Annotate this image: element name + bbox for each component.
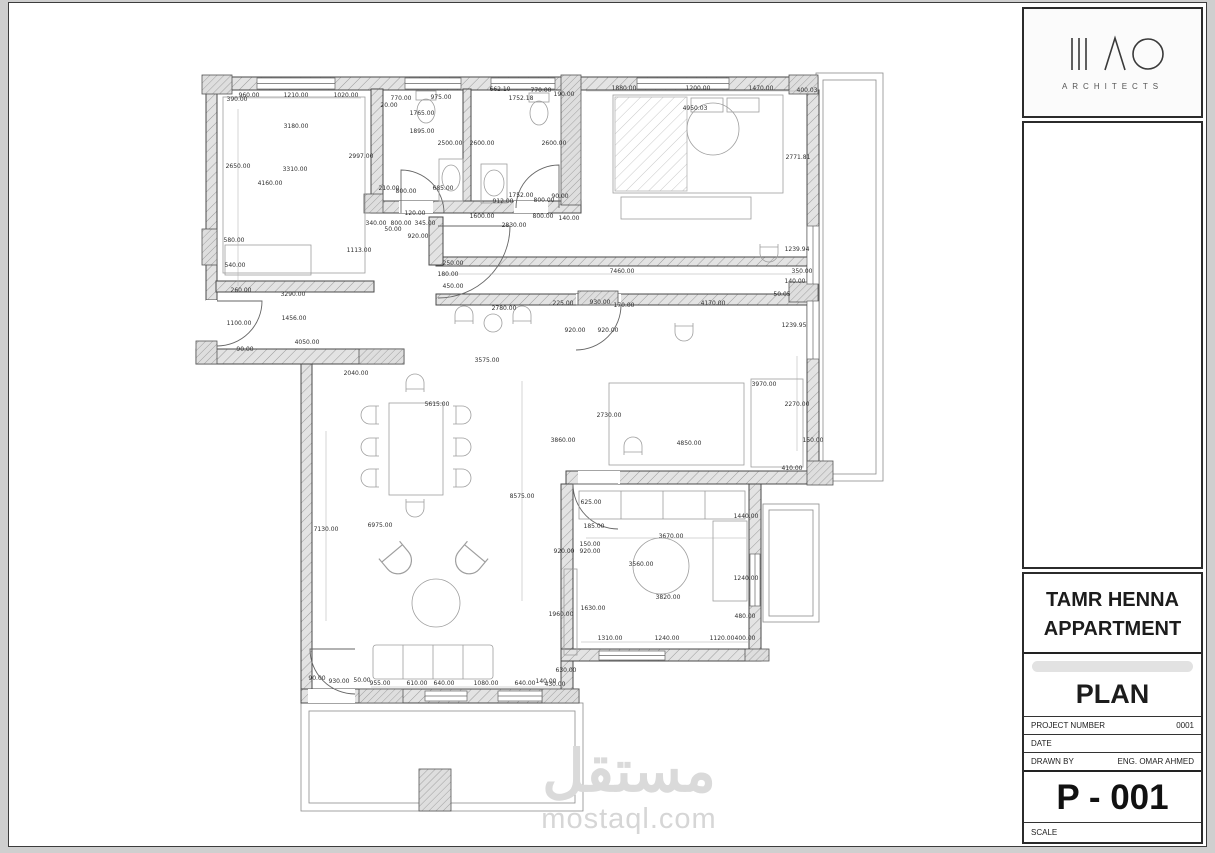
- dimension-label: 20.00: [380, 102, 397, 109]
- dimension-label: 975.00: [431, 94, 452, 101]
- dimension-label: 3670.00: [659, 533, 684, 540]
- dimension-label: 610.00: [407, 680, 428, 687]
- dimension-label: 770.00: [531, 87, 552, 94]
- dimension-label: 7130.00: [314, 526, 339, 533]
- dimension-label: 50.00: [353, 677, 370, 684]
- dimension-label: 1960.00: [549, 611, 574, 618]
- dimension-label: 1240.00: [655, 635, 680, 642]
- logo-subtitle: ARCHITECTS: [1062, 82, 1163, 91]
- dimension-label: 2600.00: [542, 140, 567, 147]
- dimension-label: 410.00: [782, 465, 803, 472]
- dimension-label: 140.00: [559, 215, 580, 222]
- dimension-label: 955.00: [370, 680, 391, 687]
- dimension-label: 2771.81: [786, 154, 811, 161]
- dimension-label: 180.00: [438, 271, 459, 278]
- dimension-label: 345.00: [415, 220, 436, 227]
- title-box: TAMR HENNA APPARTMENT PLAN PROJECT NUMBE…: [1022, 572, 1203, 844]
- dimension-label: 1020.00: [334, 92, 359, 99]
- dimension-label: 2500.00: [438, 140, 463, 147]
- dimension-label: 150.00: [580, 541, 601, 548]
- dimension-label: 920.00: [408, 233, 429, 240]
- dimension-label: 912.00: [493, 198, 514, 205]
- dimension-label: 930.00: [329, 678, 350, 685]
- dimension-label: 920.00: [554, 548, 575, 555]
- dimension-label: 640.00: [434, 680, 455, 687]
- dimension-label: 1456.00: [282, 315, 307, 322]
- dimension-label: 2270.00: [785, 401, 810, 408]
- dimension-label: 1470.00: [749, 85, 774, 92]
- dimension-label: 920.00: [580, 548, 601, 555]
- project-title-line1: TAMR HENNA: [1030, 586, 1195, 615]
- redacted-text-bar: [1032, 661, 1193, 672]
- dimension-label: 2830.00: [502, 222, 527, 229]
- dimension-label: 1239.95: [782, 322, 807, 329]
- dimension-label: 920.00: [565, 327, 586, 334]
- logo-box: ARCHITECTS: [1022, 7, 1203, 118]
- project-title-line2: APPARTMENT: [1030, 615, 1195, 644]
- dimension-label: 350.00: [792, 268, 813, 275]
- project-title: TAMR HENNA APPARTMENT: [1024, 574, 1201, 654]
- project-number-value: 0001: [1176, 721, 1194, 730]
- dimension-label: 1630.00: [581, 605, 606, 612]
- revision-box: [1022, 121, 1203, 569]
- dimension-label: 800.00: [396, 188, 417, 195]
- dimension-label: 140.00: [785, 278, 806, 285]
- dimension-label: 4170.00: [701, 300, 726, 307]
- dimension-label: 250.00: [443, 260, 464, 267]
- dimension-label: 930.00: [590, 299, 611, 306]
- windows-group: [257, 78, 819, 701]
- dimension-label: 800.00: [533, 213, 554, 220]
- dimension-label: 480.00: [735, 613, 756, 620]
- dimension-label: 3575.00: [475, 357, 500, 364]
- dimension-label: 2650.00: [226, 163, 251, 170]
- dimension-labels-group: 960.001210.001020.00390.00770.0020.00975…: [224, 85, 824, 688]
- dimension-label: 3290.00: [281, 291, 306, 298]
- dimension-lines-group: [233, 91, 806, 687]
- dimension-label: 2600.00: [470, 140, 495, 147]
- dimension-label: 5615.00: [425, 401, 450, 408]
- title-block-panel: ARCHITECTS TAMR HENNA APPARTMENT PLAN PR…: [1022, 7, 1203, 844]
- drawn-by-label: DRAWN BY: [1031, 757, 1074, 766]
- dimension-label: 90.00: [308, 675, 325, 682]
- dimension-label: 7460.00: [610, 268, 635, 275]
- dimension-label: 190.00: [554, 91, 575, 98]
- drawn-by-row: DRAWN BY ENG. OMAR AHMED: [1024, 753, 1201, 772]
- dimension-label: 3860.00: [551, 437, 576, 444]
- dimension-label: 2730.00: [597, 412, 622, 419]
- sheet-number: P - 001: [1024, 772, 1201, 823]
- dimension-label: 1895.00: [410, 128, 435, 135]
- dimension-label: 4950.03: [683, 105, 708, 112]
- project-number-row: PROJECT NUMBER 0001: [1024, 717, 1201, 735]
- dimension-label: 4160.00: [258, 180, 283, 187]
- dimension-label: 630.00: [556, 667, 577, 674]
- dimension-label: 225.00: [553, 300, 574, 307]
- drawn-by-value: ENG. OMAR AHMED: [1118, 757, 1194, 766]
- dimension-label: 1120.00: [710, 635, 735, 642]
- dimension-label: 1200.00: [686, 85, 711, 92]
- dimension-label: 625.00: [581, 499, 602, 506]
- dimension-label: 2780.00: [492, 305, 517, 312]
- dimension-label: 400.00: [735, 635, 756, 642]
- dimension-label: 1440.00: [734, 513, 759, 520]
- mao-architects-logo-icon: [1058, 34, 1168, 76]
- dimension-label: 640.00: [515, 680, 536, 687]
- dimension-label: 1080.00: [474, 680, 499, 687]
- dimension-label: 185.00: [584, 523, 605, 530]
- dimension-label: 50.00: [384, 226, 401, 233]
- dimension-label: 1239.94: [785, 246, 810, 253]
- dimension-label: 920.00: [598, 327, 619, 334]
- dimension-label: 450.00: [443, 283, 464, 290]
- dimension-label: 1113.00: [347, 247, 372, 254]
- dimension-label: 1600.00: [470, 213, 495, 220]
- dimension-label: 170.00: [614, 302, 635, 309]
- dimension-label: 2040.00: [344, 370, 369, 377]
- dimension-label: 4050.00: [295, 339, 320, 346]
- dimension-label: 580.00: [224, 237, 245, 244]
- drawing-title: PLAN: [1024, 672, 1201, 717]
- dimension-label: 120.00: [405, 210, 426, 217]
- dimension-label: 1240.00: [734, 575, 759, 582]
- date-row: DATE: [1024, 735, 1201, 753]
- dimension-label: 540.00: [225, 262, 246, 269]
- dimension-label: 770.00: [391, 95, 412, 102]
- dimension-label: 50.05: [773, 291, 790, 298]
- dimension-label: 8575.00: [510, 493, 535, 500]
- dimension-label: 1880.00: [612, 85, 637, 92]
- dimension-label: 1310.00: [598, 635, 623, 642]
- dimension-label: 90.00: [551, 193, 568, 200]
- dimension-label: 662.10: [490, 86, 511, 93]
- drawing-sheet: 960.001210.001020.00390.00770.0020.00975…: [8, 2, 1207, 847]
- scale-label: SCALE: [1024, 823, 1201, 842]
- dimension-label: 90.00: [236, 346, 253, 353]
- dimension-label: 685.00: [433, 185, 454, 192]
- dimension-label: 1752.18: [509, 95, 534, 102]
- dimension-label: 1100.00: [227, 320, 252, 327]
- dimension-label: 3310.00: [283, 166, 308, 173]
- date-label: DATE: [1031, 739, 1052, 748]
- dimension-label: 1210.00: [284, 92, 309, 99]
- dimension-label: 3820.00: [656, 594, 681, 601]
- dimension-label: 6975.00: [368, 522, 393, 529]
- dimension-label: 4850.00: [677, 440, 702, 447]
- dimension-label: 390.00: [227, 96, 248, 103]
- dimension-label: 2997.00: [349, 153, 374, 160]
- project-number-label: PROJECT NUMBER: [1031, 721, 1105, 730]
- dimension-label: 1765.00: [410, 110, 435, 117]
- dimension-label: 3970.00: [752, 381, 777, 388]
- dimension-label: 260.00: [231, 287, 252, 294]
- dimension-label: 3560.00: [629, 561, 654, 568]
- dimension-label: 150.00: [803, 437, 824, 444]
- dimension-label: 3180.00: [284, 123, 309, 130]
- dimension-label: 400.03: [797, 87, 818, 94]
- dimension-label: 430.00: [545, 681, 566, 688]
